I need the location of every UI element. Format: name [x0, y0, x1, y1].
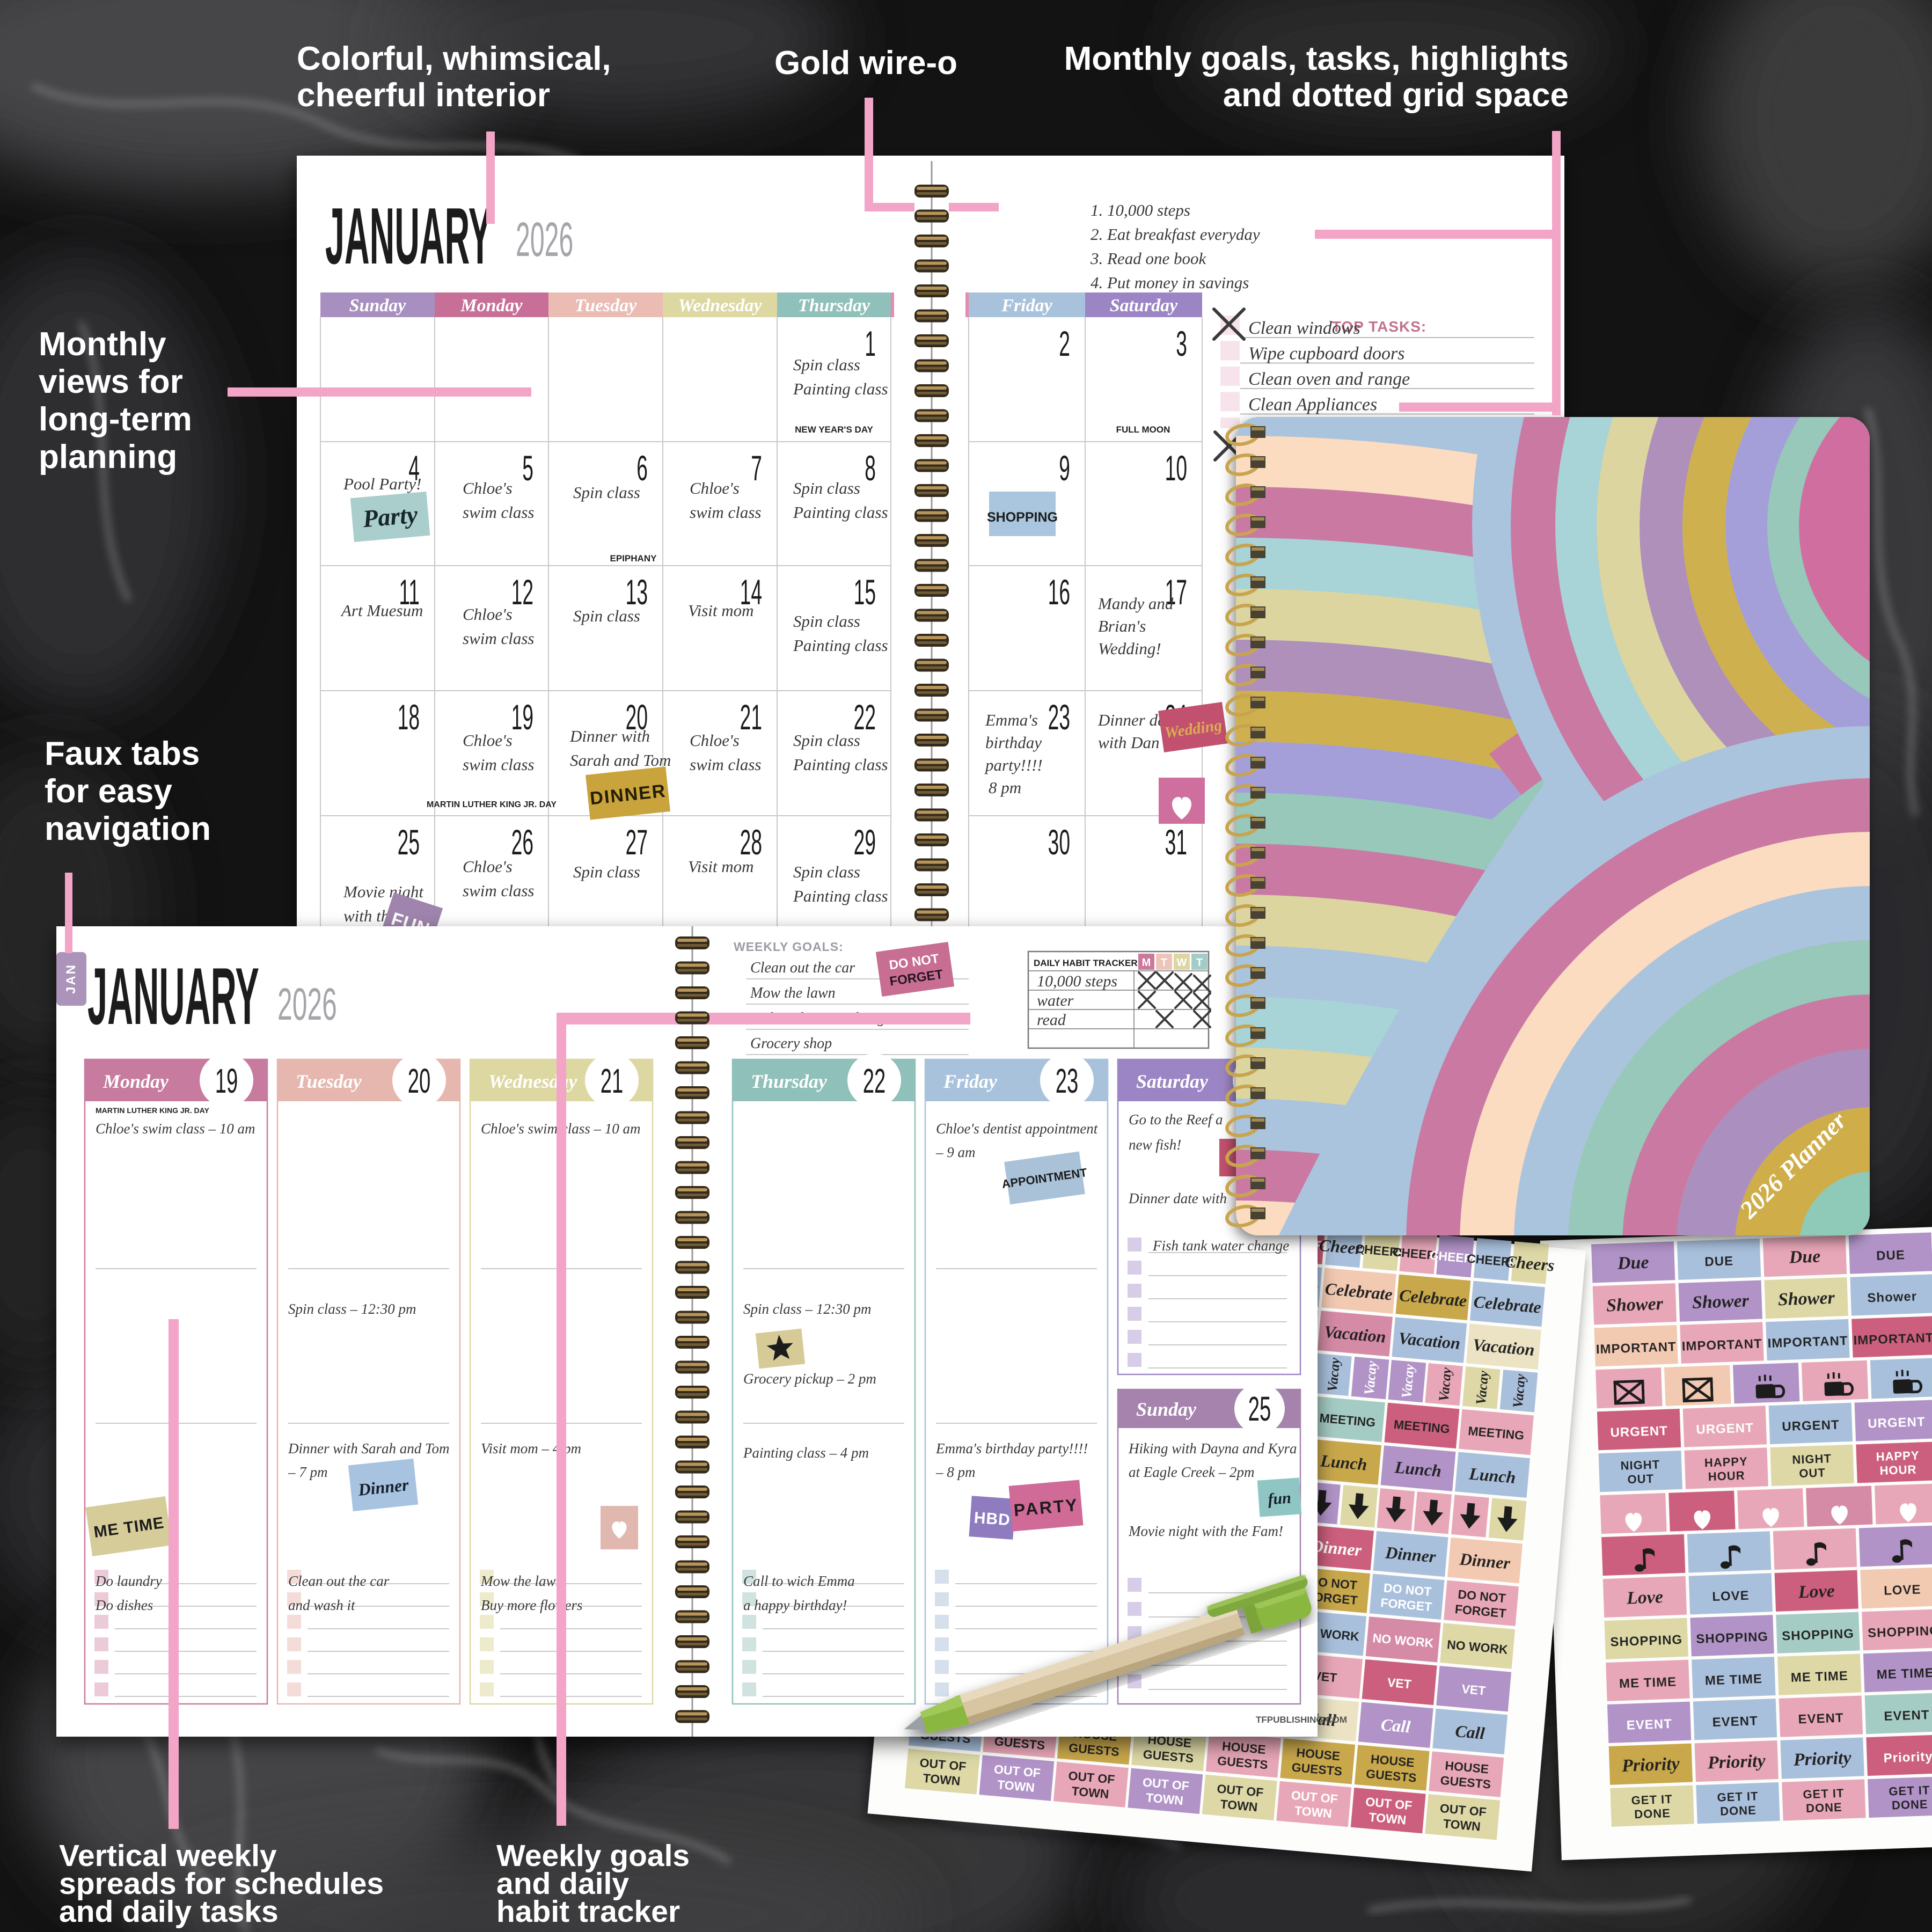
svg-text:LOVE: LOVE — [1884, 1582, 1921, 1598]
svg-text:water: water — [1037, 992, 1074, 1009]
svg-text:Chloe's: Chloe's — [463, 731, 513, 750]
svg-text:Do laundry: Do laundry — [95, 1573, 162, 1589]
svg-text:Wipe cupboard doors: Wipe cupboard doors — [1248, 344, 1405, 364]
svg-text:25: 25 — [1248, 1390, 1271, 1429]
svg-text:fun: fun — [1267, 1489, 1292, 1509]
svg-text:22: 22 — [863, 1062, 886, 1101]
svg-text:read: read — [1037, 1011, 1066, 1029]
svg-text:NEW YEAR'S DAY: NEW YEAR'S DAY — [795, 425, 873, 435]
svg-text:Monday: Monday — [103, 1071, 169, 1092]
svg-text:26: 26 — [511, 823, 533, 862]
svg-text:Clean out the car: Clean out the car — [750, 960, 855, 976]
svg-text:Gold wire-o: Gold wire-o — [774, 45, 957, 82]
svg-text:Vacay: Vacay — [1473, 1370, 1491, 1406]
svg-text:3: 3 — [1176, 325, 1187, 364]
svg-text:2026: 2026 — [516, 213, 573, 267]
svg-text:2026: 2026 — [277, 979, 337, 1029]
svg-text:HAPPY: HAPPY — [1876, 1448, 1920, 1463]
svg-text:Spin class: Spin class — [793, 612, 860, 631]
svg-text:15: 15 — [854, 573, 876, 612]
svg-text:Chloe's swim class – 10 am: Chloe's swim class – 10 am — [96, 1121, 255, 1137]
svg-text:IMPORTANT: IMPORTANT — [1596, 1340, 1677, 1357]
svg-text:EVENT: EVENT — [1626, 1717, 1672, 1733]
svg-text:Faux tabs: Faux tabs — [45, 735, 200, 772]
svg-text:Hiking with Dayna and Kyra: Hiking with Dayna and Kyra — [1128, 1440, 1297, 1457]
svg-text:Lunch: Lunch — [1468, 1463, 1517, 1487]
svg-text:Visit mom: Visit mom — [688, 857, 754, 876]
svg-text:23: 23 — [1048, 698, 1070, 737]
svg-text:Brian's: Brian's — [1098, 617, 1146, 635]
svg-text:Lunch: Lunch — [1319, 1451, 1368, 1474]
svg-text:Chloe's: Chloe's — [690, 479, 740, 497]
svg-text:Clean Appliances: Clean Appliances — [1248, 395, 1377, 415]
svg-text:Colorful, whimsical,: Colorful, whimsical, — [297, 40, 611, 77]
svg-text:Tuesday: Tuesday — [296, 1071, 362, 1092]
svg-text:18: 18 — [398, 698, 420, 737]
svg-text:swim class: swim class — [690, 755, 762, 774]
svg-text:Movie night with the Fam!: Movie night with the Fam! — [1128, 1523, 1283, 1539]
svg-text:Mandy and: Mandy and — [1097, 594, 1174, 613]
svg-text:MARTIN LUTHER KING JR. DAY: MARTIN LUTHER KING JR. DAY — [427, 800, 557, 809]
svg-text:Vacay: Vacay — [1510, 1373, 1528, 1409]
svg-text:HOUR: HOUR — [1708, 1469, 1745, 1483]
svg-text:views for: views for — [39, 363, 183, 400]
svg-text:– 7 pm: – 7 pm — [288, 1464, 328, 1480]
svg-text:1: 1 — [865, 325, 876, 364]
svg-text:DONE: DONE — [1806, 1801, 1842, 1815]
svg-text:WEEKLY GOALS:: WEEKLY GOALS: — [734, 940, 844, 954]
svg-text:DUE: DUE — [1704, 1254, 1734, 1269]
svg-text:Chloe's: Chloe's — [690, 731, 740, 750]
svg-text:Sarah and Tom: Sarah and Tom — [570, 751, 671, 770]
svg-text:MARTIN LUTHER KING JR. DAY: MARTIN LUTHER KING JR. DAY — [96, 1106, 209, 1115]
svg-text:ME TIME: ME TIME — [1790, 1668, 1848, 1685]
svg-text:Spin class: Spin class — [793, 731, 860, 750]
svg-text:URGENT: URGENT — [1696, 1421, 1754, 1437]
svg-text:Go to the Reef a: Go to the Reef a — [1129, 1111, 1223, 1128]
svg-text:Priority: Priority — [1621, 1754, 1680, 1776]
svg-text:Shower: Shower — [1777, 1288, 1835, 1310]
svg-text:Priority: Priority — [1707, 1751, 1766, 1773]
svg-text:EVENT: EVENT — [1712, 1714, 1758, 1730]
svg-text:Emma's birthday party!!!!: Emma's birthday party!!!! — [935, 1440, 1088, 1457]
svg-text:Thursday: Thursday — [798, 296, 870, 316]
svg-text:Monday: Monday — [460, 296, 523, 316]
svg-text:at Eagle Creek – 2pm: at Eagle Creek – 2pm — [1129, 1464, 1254, 1480]
svg-text:GET IT: GET IT — [1803, 1787, 1845, 1802]
svg-text:habit tracker: habit tracker — [496, 1894, 680, 1929]
svg-text:Love: Love — [1626, 1587, 1663, 1608]
svg-text:Painting class: Painting class — [793, 755, 888, 774]
svg-text:Fish tank water change: Fish tank water change — [1152, 1238, 1289, 1254]
svg-text:swim class: swim class — [463, 881, 535, 900]
svg-text:Love: Love — [1797, 1581, 1835, 1602]
svg-text:SHOPPING: SHOPPING — [1782, 1627, 1855, 1644]
svg-text:Tuesday: Tuesday — [575, 296, 638, 316]
svg-text:Spin class – 12:30 pm: Spin class – 12:30 pm — [288, 1301, 416, 1317]
svg-text:and daily tasks: and daily tasks — [59, 1894, 279, 1929]
svg-text:swim class: swim class — [690, 503, 762, 522]
svg-text:Painting class: Painting class — [793, 887, 888, 905]
svg-text:IMPORTANT: IMPORTANT — [1853, 1330, 1932, 1348]
svg-text:GET IT: GET IT — [1631, 1792, 1673, 1807]
svg-text:swim class: swim class — [463, 629, 535, 648]
svg-text:3. Read one book: 3. Read one book — [1090, 249, 1206, 268]
svg-text:Vacay: Vacay — [1399, 1363, 1417, 1399]
svg-text:M: M — [1142, 957, 1151, 969]
svg-text:DONE: DONE — [1892, 1797, 1928, 1812]
svg-text:with Dan: with Dan — [1098, 733, 1160, 752]
svg-text:Shower: Shower — [1867, 1289, 1918, 1305]
svg-text:Sunday: Sunday — [349, 296, 407, 316]
svg-text:Chloe's dentist appointment: Chloe's dentist appointment — [936, 1121, 1099, 1137]
svg-text:8 pm: 8 pm — [989, 778, 1021, 797]
svg-text:28: 28 — [740, 823, 762, 862]
svg-text:swim class: swim class — [463, 755, 535, 774]
svg-text:Grocery pickup – 2 pm: Grocery pickup – 2 pm — [743, 1371, 876, 1387]
svg-text:JAN: JAN — [64, 963, 78, 994]
svg-text:6: 6 — [636, 449, 648, 488]
svg-text:Due: Due — [1616, 1253, 1649, 1274]
svg-text:VET: VET — [1387, 1675, 1412, 1692]
svg-text:7: 7 — [751, 449, 762, 488]
svg-text:ME TIME: ME TIME — [1876, 1666, 1932, 1682]
svg-text:W: W — [1177, 957, 1187, 969]
svg-text:Movie night: Movie night — [343, 882, 424, 901]
svg-text:Dinner with: Dinner with — [569, 727, 650, 745]
svg-text:Priority: Priority — [1792, 1748, 1852, 1770]
svg-text:LOVE: LOVE — [1712, 1589, 1750, 1604]
svg-text:10: 10 — [1165, 449, 1187, 488]
svg-text:Monthly goals, tasks, highligh: Monthly goals, tasks, highlights — [1064, 40, 1569, 77]
svg-text:SHOPPING: SHOPPING — [1868, 1623, 1932, 1641]
svg-text:25: 25 — [398, 823, 420, 862]
svg-text:Painting class – 4 pm: Painting class – 4 pm — [743, 1445, 869, 1461]
svg-text:Wedding!: Wedding! — [1098, 639, 1161, 658]
svg-text:Shower: Shower — [1692, 1291, 1750, 1313]
svg-text:IMPORTANT: IMPORTANT — [1681, 1337, 1762, 1354]
svg-text:10,000 steps: 10,000 steps — [1037, 972, 1117, 990]
svg-text:2: 2 — [1059, 325, 1070, 364]
svg-text:JANUARY: JANUARY — [87, 950, 259, 1041]
svg-text:new fish!: new fish! — [1129, 1137, 1181, 1153]
svg-text:HOUR: HOUR — [1879, 1463, 1917, 1477]
svg-text:and dotted grid space: and dotted grid space — [1223, 77, 1569, 114]
svg-text:Dinner date with: Dinner date with — [1128, 1190, 1227, 1206]
svg-text:Vacay: Vacay — [1436, 1366, 1454, 1402]
svg-text:Spin class: Spin class — [793, 355, 860, 374]
svg-text:Chloe's: Chloe's — [463, 479, 513, 497]
svg-text:Friday: Friday — [1001, 296, 1052, 316]
svg-text:20: 20 — [408, 1062, 431, 1101]
svg-text:Party: Party — [361, 501, 419, 533]
svg-text:Monthly: Monthly — [39, 326, 166, 363]
svg-text:27: 27 — [626, 823, 648, 862]
svg-text:– 8 pm: – 8 pm — [935, 1464, 976, 1480]
svg-text:Shower: Shower — [1606, 1294, 1664, 1316]
svg-text:5: 5 — [522, 449, 533, 488]
svg-text:19: 19 — [511, 698, 533, 737]
svg-text:31: 31 — [1165, 823, 1187, 862]
svg-text:T: T — [1161, 957, 1167, 969]
svg-text:Spin class: Spin class — [573, 862, 640, 881]
svg-text:16: 16 — [1048, 573, 1070, 612]
svg-text:DONE: DONE — [1720, 1803, 1757, 1818]
svg-text:EVENT: EVENT — [1798, 1711, 1844, 1727]
svg-text:4. Put money in savings: 4. Put money in savings — [1091, 273, 1249, 292]
svg-text:party!!!!: party!!!! — [984, 756, 1043, 774]
svg-text:– 9 am: – 9 am — [935, 1144, 976, 1160]
svg-text:OUT: OUT — [1627, 1472, 1654, 1487]
svg-text:Chloe's: Chloe's — [463, 857, 513, 876]
svg-text:21: 21 — [740, 698, 762, 737]
svg-text:Wednesday: Wednesday — [678, 296, 762, 316]
svg-text:Thursday: Thursday — [751, 1071, 828, 1092]
svg-text:29: 29 — [854, 823, 876, 862]
svg-text:8: 8 — [865, 449, 876, 488]
svg-text:Painting class: Painting class — [793, 379, 888, 398]
svg-text:21: 21 — [601, 1062, 624, 1101]
svg-text:Painting class: Painting class — [793, 503, 888, 522]
svg-text:cheerful interior: cheerful interior — [297, 77, 550, 114]
svg-text:Lunch: Lunch — [1393, 1457, 1442, 1481]
svg-text:Painting class: Painting class — [793, 636, 888, 655]
svg-text:Priority: Priority — [1883, 1750, 1932, 1766]
svg-text:for easy: for easy — [45, 773, 172, 810]
svg-text:planning: planning — [39, 438, 177, 475]
svg-text:Call to wich Emma: Call to wich Emma — [743, 1573, 855, 1589]
svg-text:SHOPPING: SHOPPING — [987, 510, 1058, 525]
svg-text:EPIPHANY: EPIPHANY — [610, 553, 657, 563]
svg-text:30: 30 — [1048, 823, 1070, 862]
svg-text:DONE: DONE — [1634, 1806, 1671, 1821]
svg-text:URGENT: URGENT — [1610, 1424, 1668, 1440]
svg-text:Emma's: Emma's — [985, 711, 1038, 729]
svg-text:SHOPPING: SHOPPING — [1610, 1633, 1683, 1650]
svg-text:and wash it: and wash it — [288, 1597, 356, 1613]
svg-text:Pool Party!: Pool Party! — [343, 474, 422, 493]
svg-text:NIGHT: NIGHT — [1792, 1452, 1832, 1467]
svg-text:Call: Call — [1380, 1715, 1411, 1737]
svg-text:Dinner with Sarah and Tom: Dinner with Sarah and Tom — [288, 1440, 450, 1457]
svg-text:HAPPY: HAPPY — [1704, 1455, 1748, 1470]
svg-text:T: T — [1196, 957, 1203, 969]
svg-text:Vacay: Vacay — [1324, 1357, 1343, 1392]
svg-text:Spin class – 12:30 pm: Spin class – 12:30 pm — [743, 1301, 872, 1317]
svg-text:12: 12 — [511, 573, 533, 612]
svg-text:a happy birthday!: a happy birthday! — [743, 1597, 847, 1613]
svg-text:Clean out the car: Clean out the car — [288, 1573, 390, 1589]
svg-text:Mow the lawn: Mow the lawn — [750, 985, 836, 1001]
svg-text:Art Muesum: Art Muesum — [340, 601, 423, 620]
svg-text:Vacay: Vacay — [1362, 1360, 1380, 1395]
svg-text:1. 10,000 steps: 1. 10,000 steps — [1091, 201, 1190, 219]
svg-text:Chloe's: Chloe's — [463, 605, 513, 624]
svg-text:Visit mom: Visit mom — [688, 601, 754, 620]
svg-text:NIGHT: NIGHT — [1620, 1458, 1660, 1473]
svg-text:Spin class: Spin class — [573, 606, 640, 625]
svg-text:long-term: long-term — [39, 401, 192, 438]
svg-text:Due: Due — [1788, 1247, 1821, 1268]
svg-text:Clean oven and range: Clean oven and range — [1248, 369, 1410, 389]
svg-text:FULL MOON: FULL MOON — [1116, 425, 1170, 435]
svg-text:DAILY HABIT TRACKER:: DAILY HABIT TRACKER: — [1034, 958, 1140, 968]
svg-text:ME TIME: ME TIME — [1619, 1674, 1677, 1691]
svg-text:birthday: birthday — [985, 733, 1042, 752]
svg-text:Call: Call — [1454, 1721, 1485, 1743]
svg-text:Buy more flowers: Buy more flowers — [481, 1597, 582, 1613]
svg-text:Grocery shop: Grocery shop — [750, 1035, 832, 1052]
svg-text:Clean windows: Clean windows — [1248, 318, 1360, 338]
svg-text:Saturday: Saturday — [1136, 1071, 1209, 1092]
svg-text:19: 19 — [215, 1062, 238, 1101]
svg-text:Sunday: Sunday — [1136, 1399, 1197, 1420]
svg-text:GET IT: GET IT — [1717, 1789, 1759, 1804]
svg-text:HBD: HBD — [974, 1509, 1011, 1529]
svg-text:Spin class: Spin class — [793, 479, 860, 497]
svg-text:TFPUBLISHING.COM: TFPUBLISHING.COM — [1256, 1715, 1347, 1725]
svg-text:URGENT: URGENT — [1868, 1415, 1926, 1431]
svg-text:GET IT: GET IT — [1889, 1783, 1930, 1798]
svg-text:9: 9 — [1059, 449, 1070, 488]
svg-text:Do dishes: Do dishes — [95, 1597, 153, 1613]
svg-text:SHOPPING: SHOPPING — [1696, 1629, 1769, 1646]
svg-text:23: 23 — [1056, 1062, 1079, 1101]
svg-text:swim class: swim class — [463, 503, 535, 522]
svg-text:navigation: navigation — [45, 810, 211, 847]
svg-text:ME TIME: ME TIME — [1704, 1672, 1762, 1688]
svg-text:Mow the lawn: Mow the lawn — [480, 1573, 563, 1589]
svg-text:2. Eat breakfast everyday: 2. Eat breakfast everyday — [1091, 225, 1260, 244]
svg-text:EVENT: EVENT — [1884, 1708, 1930, 1724]
svg-text:OUT: OUT — [1799, 1466, 1826, 1481]
svg-text:Saturday: Saturday — [1110, 296, 1178, 316]
svg-text:Spin class: Spin class — [793, 862, 860, 881]
svg-text:Friday: Friday — [943, 1071, 998, 1092]
svg-text:IMPORTANT: IMPORTANT — [1767, 1334, 1848, 1351]
svg-text:URGENT: URGENT — [1782, 1418, 1840, 1435]
svg-text:DUE: DUE — [1876, 1248, 1906, 1263]
svg-text:Spin class: Spin class — [573, 483, 640, 502]
svg-text:JANUARY: JANUARY — [325, 192, 492, 281]
svg-text:VET: VET — [1461, 1682, 1487, 1698]
